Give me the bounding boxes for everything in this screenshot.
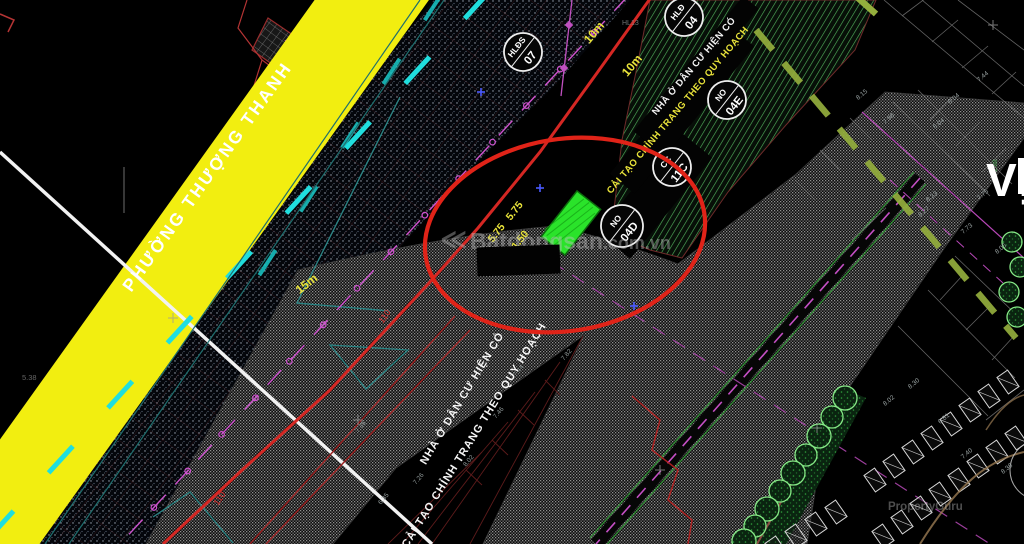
parcel-number: 7.26 [412, 472, 426, 486]
tree [999, 282, 1019, 302]
parcel-line [962, 46, 988, 68]
building [872, 524, 894, 544]
small-label-hl13: HL13 [622, 20, 639, 27]
cad-planning-map: PHƯỜNG THƯỢNG THANH 10m 10m 15m 110 110 … [0, 0, 1024, 544]
parcel-number: 8.30 [907, 377, 921, 391]
watermark-partner: PropertyGuru [888, 501, 963, 513]
parcel-line [902, 0, 926, 16]
parcel-number: 8.36 [1000, 462, 1014, 476]
building [959, 398, 981, 422]
building [986, 440, 1008, 464]
tree [1010, 257, 1024, 277]
building [997, 370, 1019, 394]
parcel-line [966, 306, 990, 330]
small-label-538: 5.38 [22, 373, 37, 382]
building [978, 384, 1000, 408]
building [948, 468, 970, 492]
building [921, 426, 943, 450]
building [864, 468, 886, 492]
parcel-line [932, 20, 958, 42]
parcel-number: 7.44 [976, 70, 990, 84]
parcel-line [928, 290, 1015, 378]
parcel-line [492, 440, 508, 455]
watermark-logo: ≪ [440, 224, 467, 254]
parcel-line [898, 326, 988, 416]
parcel-number: 8.15 [855, 88, 869, 102]
building [902, 440, 924, 464]
building [825, 500, 847, 524]
parcel-line [518, 410, 534, 425]
parcel-number: 8.02 [882, 394, 896, 408]
building [891, 510, 913, 534]
building [883, 454, 905, 478]
plot-dim-575b: 5.75 [504, 199, 526, 223]
parcel-line [940, 276, 962, 300]
tree [1007, 307, 1024, 327]
parcel-line [992, 336, 1014, 360]
redaction-box [477, 245, 561, 277]
parcel-line [922, 0, 1024, 86]
parcel-line [992, 72, 1016, 94]
parcel-line [466, 470, 482, 485]
location-label-clipped-glyph [1018, 158, 1024, 194]
map-canvas: PHƯỜNG THƯỢNG THANH 10m 10m 15m 110 110 … [0, 0, 1024, 544]
